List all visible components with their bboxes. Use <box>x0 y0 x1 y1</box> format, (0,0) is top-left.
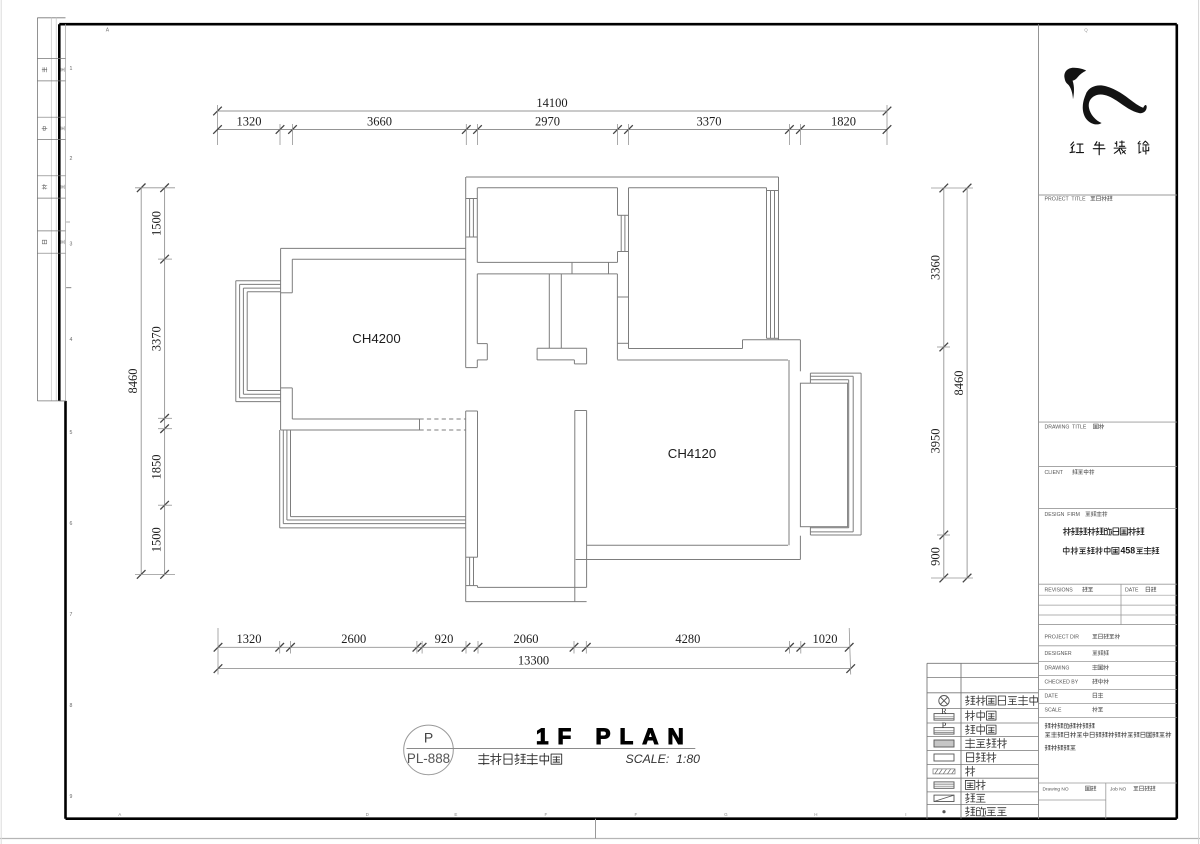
svg-text:DESIGNER: DESIGNER <box>1045 651 1072 657</box>
svg-text:DRAWING: DRAWING <box>1045 666 1070 672</box>
svg-text:2: 2 <box>70 156 73 162</box>
svg-text:CHECKED BY: CHECKED BY <box>1045 680 1079 686</box>
svg-text:1F PLAN: 1F PLAN <box>536 724 693 749</box>
svg-text:Drawing NO: Drawing NO <box>1043 787 1069 793</box>
svg-text:P: P <box>942 720 947 730</box>
svg-text:4: 4 <box>70 337 73 343</box>
svg-text:3360: 3360 <box>929 255 943 280</box>
svg-text:PL-888: PL-888 <box>407 751 450 766</box>
svg-text:R: R <box>941 706 947 716</box>
svg-text:9: 9 <box>70 794 73 800</box>
svg-text:458: 458 <box>1121 546 1136 556</box>
svg-text:CH4200: CH4200 <box>352 331 400 346</box>
svg-text:PROJECT TITLE: PROJECT TITLE <box>1045 197 1087 203</box>
svg-text:6: 6 <box>70 521 73 527</box>
svg-text:Job NO: Job NO <box>1110 787 1127 793</box>
svg-text:1500: 1500 <box>149 527 163 552</box>
svg-text:1820: 1820 <box>831 114 856 128</box>
svg-text:F: F <box>545 812 548 817</box>
svg-text:13300: 13300 <box>518 653 549 667</box>
svg-text:H: H <box>814 812 817 817</box>
svg-text:CH4120: CH4120 <box>668 446 716 461</box>
svg-text:A: A <box>118 812 121 817</box>
svg-text:1500: 1500 <box>149 211 163 236</box>
svg-text:3950: 3950 <box>929 429 943 454</box>
svg-text:2060: 2060 <box>514 632 539 646</box>
svg-text:SCALE: SCALE <box>1045 708 1063 714</box>
svg-text:1850: 1850 <box>149 455 163 480</box>
svg-text:3: 3 <box>70 242 73 248</box>
svg-text:DESIGN FIRM: DESIGN FIRM <box>1045 512 1080 518</box>
svg-text:2600: 2600 <box>341 632 366 646</box>
svg-text:REVISIONS: REVISIONS <box>1045 588 1074 594</box>
svg-text:I: I <box>905 812 906 817</box>
svg-text:2970: 2970 <box>535 114 560 128</box>
svg-text:7: 7 <box>70 612 73 618</box>
svg-text:DRAWING TITLE: DRAWING TITLE <box>1045 425 1087 431</box>
svg-text:14100: 14100 <box>536 96 567 110</box>
svg-text:DATE: DATE <box>1045 694 1059 700</box>
svg-text:P: P <box>424 730 433 746</box>
svg-text:8: 8 <box>70 703 73 709</box>
svg-text:DATE: DATE <box>1125 588 1139 594</box>
svg-text:4280: 4280 <box>675 632 700 646</box>
svg-text:1320: 1320 <box>237 632 262 646</box>
svg-text:G: G <box>724 812 728 817</box>
svg-text:920: 920 <box>435 632 454 646</box>
svg-text:1: 1 <box>70 66 73 72</box>
svg-text:900: 900 <box>929 547 943 566</box>
svg-text:PROJECT DIR: PROJECT DIR <box>1045 635 1080 641</box>
svg-text:8460: 8460 <box>126 369 140 394</box>
svg-text:Q: Q <box>1084 28 1088 33</box>
svg-text:3660: 3660 <box>367 114 392 128</box>
svg-text:3370: 3370 <box>697 114 722 128</box>
svg-text:CLIENT: CLIENT <box>1045 470 1064 476</box>
svg-text:E: E <box>454 812 457 817</box>
svg-text:5: 5 <box>70 430 73 436</box>
svg-text:1020: 1020 <box>813 632 838 646</box>
svg-text:8460: 8460 <box>952 371 966 396</box>
svg-text:1320: 1320 <box>237 114 262 128</box>
svg-text:3370: 3370 <box>149 326 163 351</box>
svg-text:SCALE: 1:80: SCALE: 1:80 <box>626 752 701 766</box>
svg-text:F: F <box>635 812 638 817</box>
